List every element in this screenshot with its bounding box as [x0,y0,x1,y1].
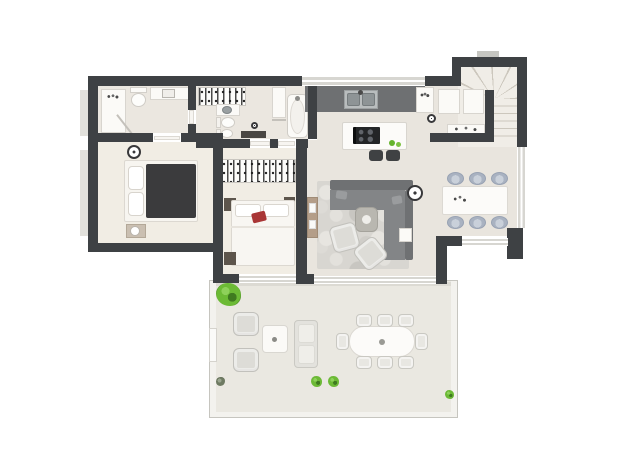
sofa-pillow-b [391,195,402,205]
master-bedroom-window [239,275,296,283]
bedroom1-floor-lamp [127,145,141,159]
sofa-pillow-a [335,190,347,199]
bedroom1-duvet [146,164,196,218]
left-sill-bath [80,90,88,136]
bath2-door [250,141,270,146]
kitchen-sink-faucet [358,90,363,95]
dining-window-right [517,147,526,228]
wall-segment-1 [88,76,272,86]
wall-segment-6 [517,57,527,147]
master-pillow-right [263,204,289,217]
terrace-chair-right [415,333,428,350]
left-sill-bedroom [80,150,88,236]
coffee-table-tray [362,215,371,224]
bath1-door [189,110,194,124]
entry-cabinet-left [438,89,460,114]
kitchen-sink-basin-right [362,93,375,106]
wall-segment-15 [188,124,196,133]
wall-segment-16 [196,139,250,148]
dressing-lamp [251,122,258,129]
bath2-sink [222,106,232,114]
terrace-plant-a [311,376,322,387]
stairs-flight [494,99,517,142]
wall-segment-5 [452,57,527,67]
dining-table-decor [452,193,468,205]
kitchen-window [302,76,425,86]
entry-cabinet-right [463,89,484,114]
terrace-chair-bottom-1 [356,356,372,369]
bedroom1-table-lamp [130,226,140,236]
dining-chair-5 [469,216,486,229]
terrace-chair-top-3 [398,314,414,327]
terrace-lounge-chair-top [233,312,259,336]
bath1-vanity-faucet [106,94,120,99]
master-bench [224,252,236,265]
dining-chair-2 [469,172,486,185]
wall-segment-2 [272,76,302,86]
terrace-chair-bottom-3 [398,356,414,369]
terrace-chair-left [336,333,349,350]
kitchen-oven-control [420,92,430,98]
wall-segment-24 [436,236,462,246]
island-stool-left [369,150,383,161]
dining-window-bottom [462,238,508,246]
wall-segment-20 [296,148,307,283]
dining-chair-6 [491,216,508,229]
bath1-toilet-bowl [131,93,146,107]
media-console-item-top [309,203,316,213]
bath1-sink [162,89,175,98]
terrace-sofa-cushion-top [298,324,315,343]
dining-chair-4 [447,216,464,229]
terrace-chair-top-1 [356,314,372,327]
terrace-dining-table-dot [379,339,385,345]
sofa-side-table [399,228,412,242]
wall-segment-11 [98,133,153,142]
wall-segment-13 [213,133,223,283]
terrace-plant-d [445,390,454,399]
bath2-toilet-bowl [221,117,235,128]
terrace-lounge-chair-bottom [233,348,259,372]
wall-segment-8 [430,133,494,142]
entry-console-decor [450,126,482,132]
terrace-coffee-table-dot [272,337,277,342]
wall-segment-17 [270,139,278,148]
living-floor-lamp [407,185,423,201]
wall-segment-25 [507,228,523,259]
dining-chair-3 [491,172,508,185]
living-room-window [314,276,436,284]
kitchen-cooktop [353,127,380,144]
media-console-item-bottom [309,220,316,229]
terrace-plant-large [216,283,241,306]
wall-segment-19 [308,86,317,139]
wall-segment-14 [188,86,196,110]
kitchen-sink-basin-left [347,93,360,106]
bedroom1-pillow-bottom [128,192,144,216]
wall-segment-18 [296,139,308,148]
master-duvet-fold [231,226,295,228]
bath2-shower-screen [272,119,286,121]
kitchen-oven-tower [416,87,434,113]
floor-plan [0,0,640,452]
bath2-bathtub-faucet [295,96,300,101]
bath2-partition [272,87,286,118]
dining-chair-1 [447,172,464,185]
bedroom1-pillow-top [128,166,144,190]
dressing-console [241,131,266,138]
sofa-back-top [330,180,413,190]
terrace-plant-b [328,376,339,387]
terrace-sofa-cushion-bottom [298,345,315,364]
wall-segment-22 [296,274,314,284]
island-fruit-a [389,140,395,146]
hall-floor-lamp [427,114,436,123]
island-fruit-b [396,142,401,147]
island-stool-right [386,150,400,161]
terrace-chair-top-2 [377,314,393,327]
terrace-chair-bottom-2 [377,356,393,369]
wall-segment-9 [88,76,98,252]
wall-segment-10 [88,243,220,252]
master-bedroom-door [278,141,295,146]
bedroom1-door [154,136,180,140]
terrace-planter [209,328,217,362]
wall-segment-21 [213,274,239,283]
bath2-bathtub-inner [290,99,305,134]
master-wardrobe [220,159,296,183]
